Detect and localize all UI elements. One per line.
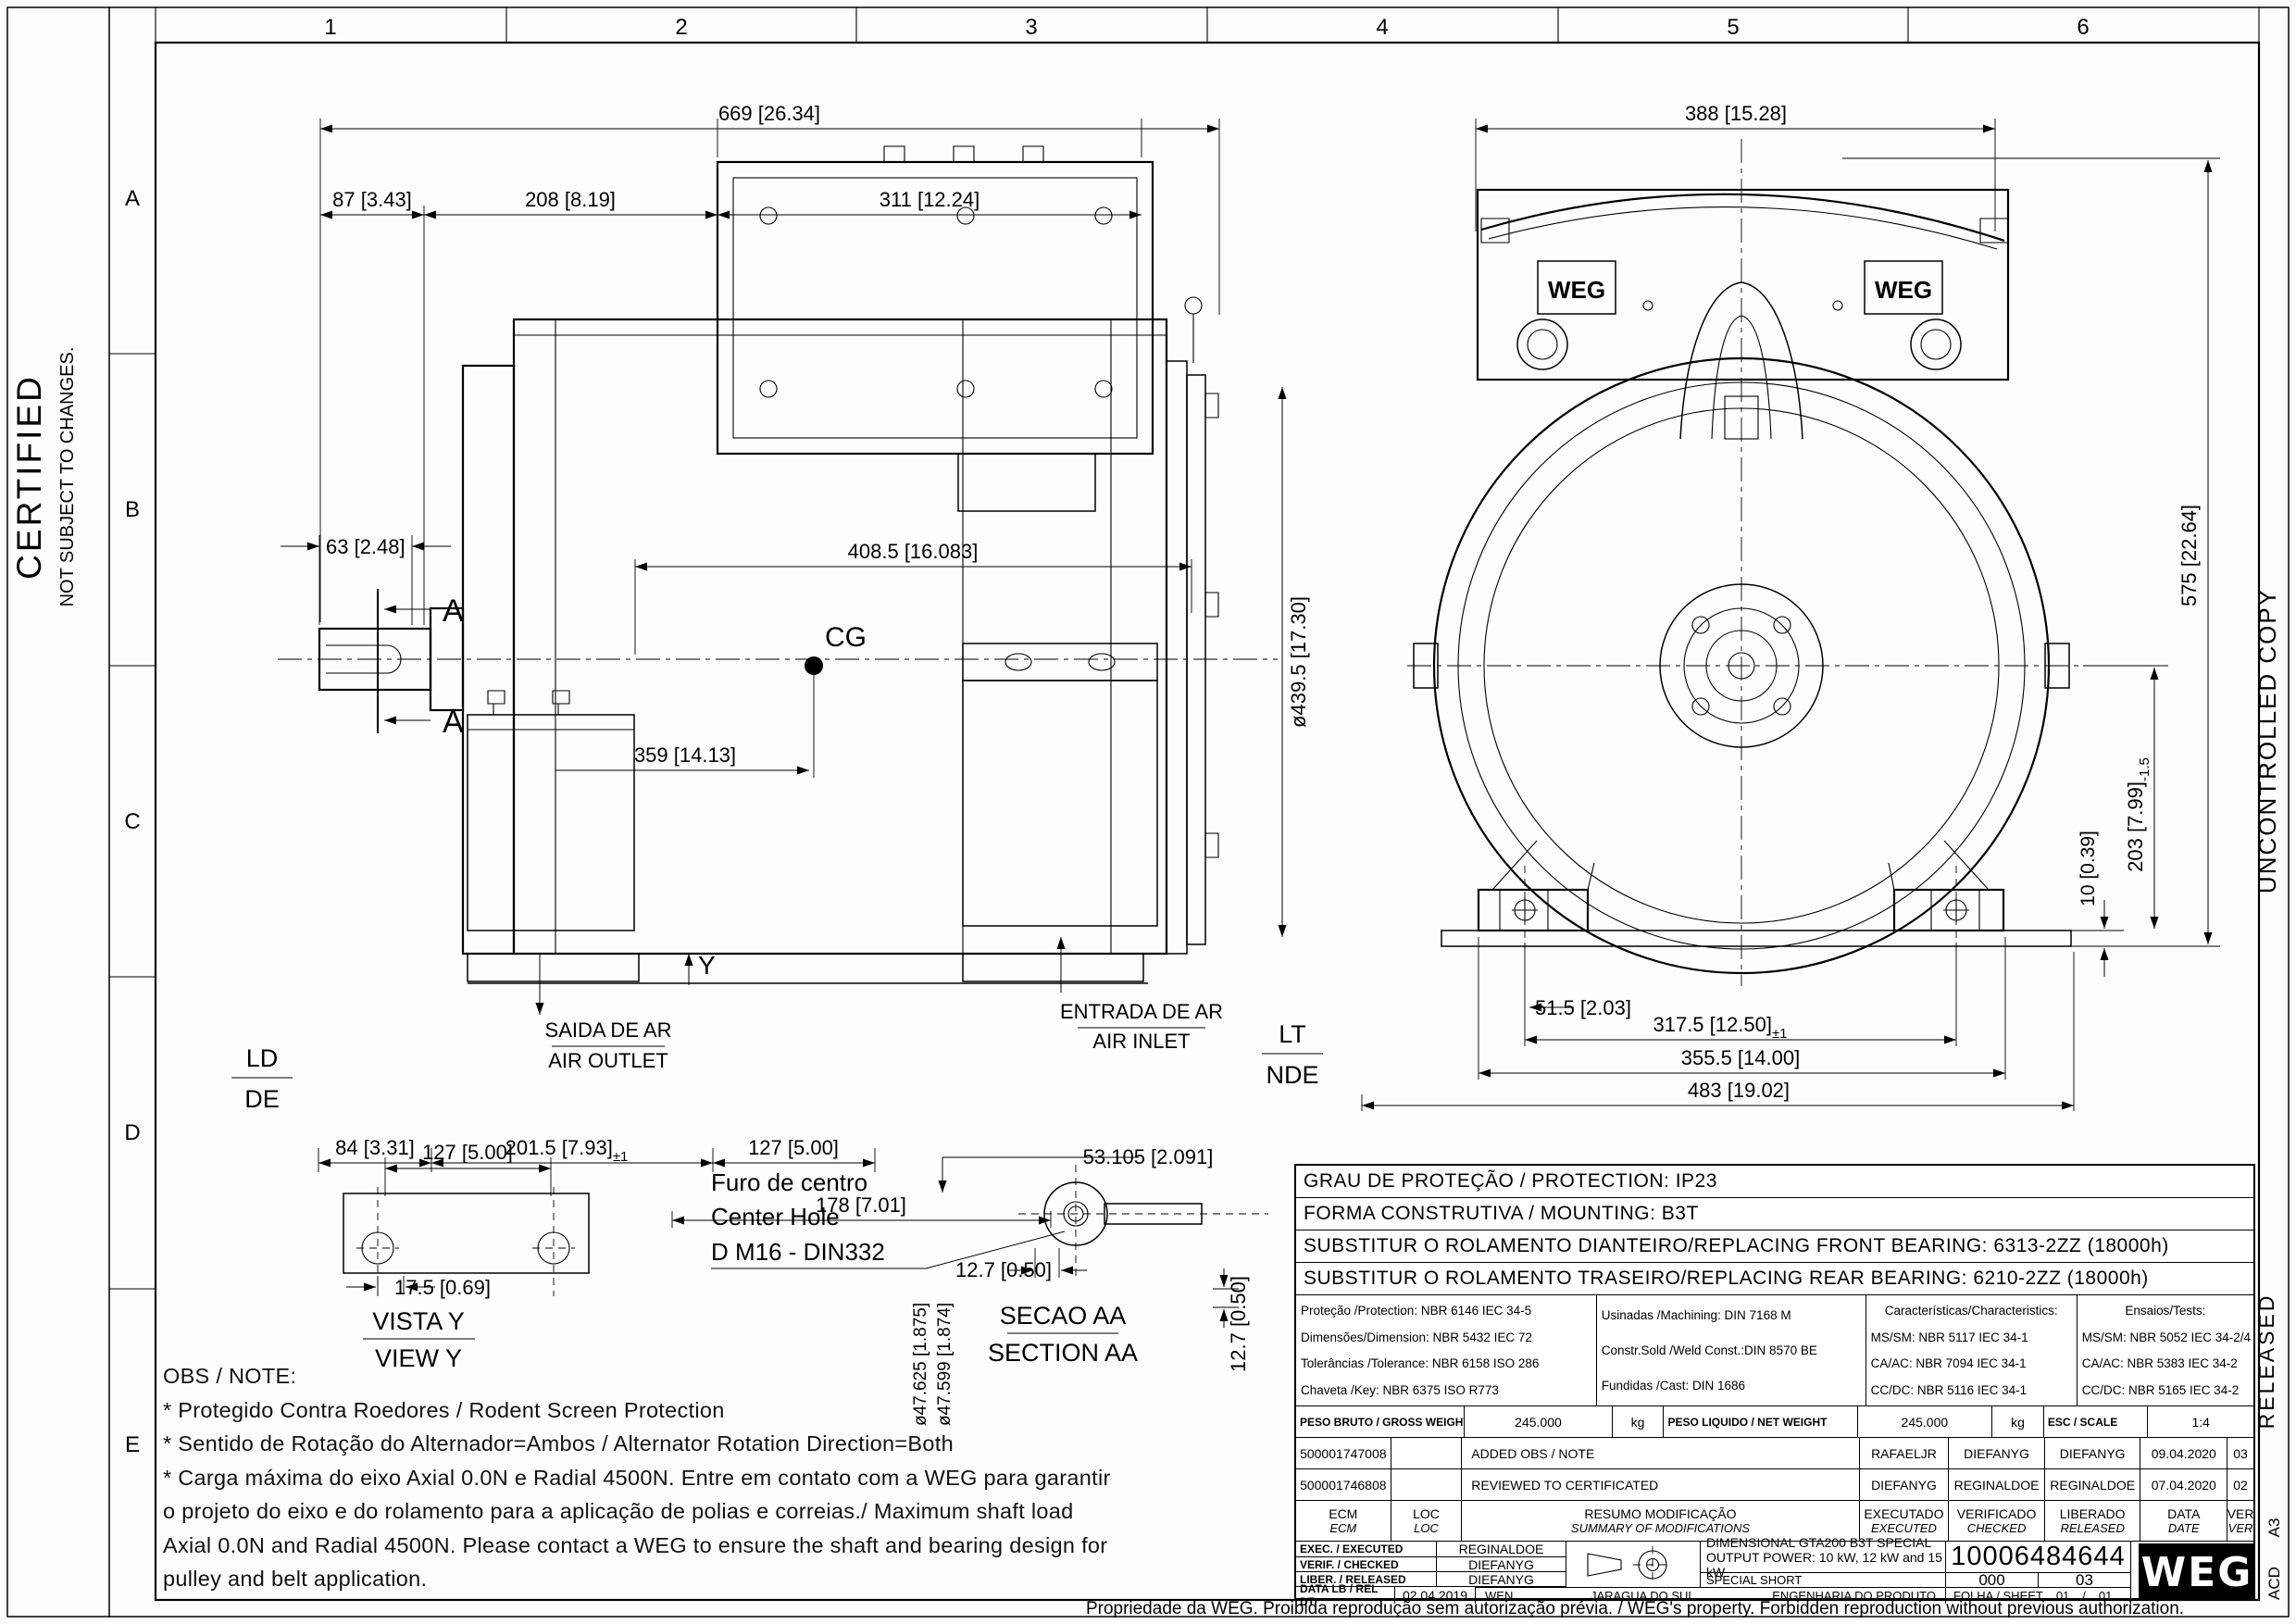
rev-ver: 02: [2227, 1469, 2253, 1500]
zone-col-3: 3: [1025, 15, 1037, 40]
liber-value: DIEFANYG: [1437, 1572, 1566, 1587]
y-view-arrow-label: Y: [698, 951, 716, 980]
rev-ver: 03: [2227, 1438, 2253, 1468]
uncontrolled-copy-stamp: UNCONTROLLED COPY: [2253, 588, 2281, 893]
rev-loc: [1391, 1438, 1463, 1468]
sheet-value: 01: [2056, 1589, 2069, 1603]
projection-symbol-cell: [1566, 1542, 1701, 1587]
note-line: * Sentido de Rotação do Alternador=Ambos…: [163, 1427, 1255, 1461]
dim-key-length: 53.105 [2.091]: [1083, 1145, 1214, 1168]
standard-line: Dimensões/Dimension: NBR 5432 IEC 72: [1301, 1330, 1591, 1344]
dim-base-thickness: 10 [0.39]: [2078, 831, 2099, 906]
standard-line: MS/SM: NBR 5052 IEC 34-2/4: [2082, 1330, 2249, 1344]
dim-cg-position: 359 [14.13]: [634, 743, 736, 767]
standard-line: CC/DC: NBR 5165 IEC 34-2: [2082, 1383, 2249, 1397]
weg-logo: WEG: [2139, 1543, 2255, 1601]
released-stamp: RELEASED: [2254, 1293, 2278, 1430]
center-hole-label-en: Center Hole: [711, 1203, 840, 1230]
air-outlet-label-pt: SAIDA DE AR: [545, 1018, 672, 1042]
site-row: WEN JARAGUA DO SUL ENGENHARIA DO PRODUTO: [1476, 1587, 1946, 1604]
title-block-tables: GRAU DE PROTEÇÃO / PROTECTION: IP23 FORM…: [1294, 1164, 2255, 1600]
zone-row-d: D: [124, 1120, 140, 1145]
rev-header-checked: VERIFICADOCHECKED: [1949, 1501, 2045, 1541]
dim-key-height: 12.7 [0.50]: [1227, 1276, 1250, 1372]
dim-frame-length: 408.5 [16.083]: [848, 540, 979, 563]
dim-feet-width: 355.5 [14.00]: [1681, 1046, 1800, 1069]
rev-date: 09.04.2020: [2140, 1438, 2227, 1468]
dim-foot-span: 201.5 [7.93]±1: [505, 1136, 629, 1165]
acd-label: ACD: [2265, 1567, 2283, 1600]
foot-hole-marks: [1512, 897, 1969, 923]
dim-foot-span-tol: ±1: [613, 1149, 629, 1165]
zone-col-1: 1: [324, 15, 336, 40]
spec-rear-bearing: SUBSTITUR O ROLAMENTO TRASEIRO/REPLACING…: [1296, 1263, 2253, 1294]
dim-foot-span-value: 201.5 [7.93]: [505, 1136, 613, 1159]
sheet-label: FOLHA / SHEET: [1953, 1589, 2043, 1603]
rev-header-date: DATADATE: [2140, 1501, 2227, 1541]
exec-label: EXEC. / EXECUTED: [1296, 1542, 1437, 1557]
drawing-sheet: 1 2 3 4 5 6 A B C D E CERTIFIED NOT SUBJ…: [0, 0, 2296, 1624]
standard-line: Usinadas /Machining: DIN 7168 M: [1602, 1308, 1861, 1322]
spec-row-front-bearing: SUBSTITUR O ROLAMENTO DIANTEIRO/REPLACIN…: [1296, 1230, 2253, 1263]
note-line: * Carga máxima do eixo Axial 0.0N e Radi…: [163, 1461, 1255, 1495]
standards-characteristics: Características/Characteristics: MS/SM: …: [1866, 1295, 2078, 1405]
rev-header-ecm: ECMECM: [1296, 1501, 1391, 1541]
a3-format-label: A3: [2265, 1518, 2283, 1538]
hdr-pt: RESUMO MODIFICAÇÃO: [1584, 1506, 1736, 1521]
date-value: 02.04.2019: [1395, 1587, 1476, 1604]
non-drive-end-label-en: NDE: [1266, 1061, 1318, 1089]
rev-date: 07.04.2020: [2140, 1469, 2227, 1500]
extension-lines: [318, 119, 2220, 1307]
rev-ecm: 500001746808: [1296, 1469, 1391, 1500]
spec-row-protection: GRAU DE PROTEÇÃO / PROTECTION: IP23: [1296, 1166, 2253, 1198]
standard-line: Fundidas /Cast: DIN 1686: [1602, 1379, 1861, 1393]
hdr-en: CHECKED: [1967, 1521, 2027, 1536]
hdr-en: LOC: [1414, 1521, 1439, 1536]
rev-released: REGINALDOE: [2045, 1469, 2141, 1500]
weg-cast-logo-right: WEG: [1875, 276, 1932, 304]
document-number: 10006484644: [1946, 1542, 2131, 1572]
dim-foot-holes-span: 317.5 [12.50]±1: [1653, 1013, 1787, 1042]
spec-protection: GRAU DE PROTEÇÃO / PROTECTION: IP23: [1296, 1166, 2253, 1197]
rev-header-ver: VERVER: [2227, 1501, 2253, 1541]
standard-line: Ensaios/Tests:: [2082, 1304, 2249, 1318]
rev-summary: ADDED OBS / NOTE: [1462, 1438, 1859, 1468]
dim-vista-offset: 17.5 [0.69]: [394, 1276, 491, 1299]
rev-header-loc: LOCLOC: [1391, 1501, 1463, 1541]
rev-ecm: 500001747008: [1296, 1438, 1391, 1468]
center-hole-label-pt: Furo de centro: [711, 1168, 867, 1196]
sheet-total: 01: [2099, 1589, 2112, 1603]
cg-marker: [805, 656, 823, 675]
standard-line: Chaveta /Key: NBR 6375 ISO R773: [1301, 1383, 1591, 1397]
drawing-title-cell: DIMENSIONAL GTA200 B3T SPECIAL OUTPUT PO…: [1701, 1542, 1946, 1572]
zone-row-b: B: [125, 497, 140, 522]
dim-foot-holes-span-value: 317.5 [12.50]: [1653, 1013, 1771, 1036]
hdr-en: RELEASED: [2060, 1521, 2124, 1536]
dim-shaft-height-tol: -1.5: [2137, 757, 2152, 781]
dim-rear-width: 388 [15.28]: [1685, 102, 1787, 125]
drawing-variant-cell: SPECIAL SHORT: [1701, 1572, 1946, 1587]
rev-loc: [1391, 1469, 1463, 1500]
dim-foot-edge: 51.5 [2.03]: [1535, 996, 1631, 1019]
hdr-pt: EXECUTADO: [1864, 1506, 1943, 1521]
dim-shaft-height: 203 [7.99]-1.5: [2124, 757, 2152, 872]
note-line: o projeto do eixo e do rolamento para a …: [163, 1494, 1255, 1529]
gross-weight-value: 245.000: [1465, 1406, 1612, 1437]
gross-weight-unit: kg: [1613, 1406, 1665, 1437]
air-inlet-label-en: AIR INLET: [1092, 1030, 1190, 1053]
dim-shaft-end: 87 [3.43]: [332, 188, 412, 211]
verif-value: DIEFANYG: [1437, 1557, 1566, 1572]
hdr-pt: ECM: [1329, 1506, 1357, 1521]
revision-right: 03: [2039, 1572, 2131, 1587]
drive-end-label-en: DE: [244, 1085, 280, 1113]
revision-left: 000: [1946, 1572, 2039, 1587]
air-outlet-label-en: AIR OUTLET: [548, 1049, 668, 1072]
spec-front-bearing: SUBSTITUR O ROLAMENTO DIANTEIRO/REPLACIN…: [1296, 1230, 2253, 1262]
note-line: Axial 0.0N and Radial 4500N. Please cont…: [163, 1529, 1255, 1563]
rev-executed: RAFAELJR: [1860, 1438, 1950, 1468]
dim-foot-hole: 127 [5.00]: [748, 1136, 839, 1159]
secao-aa-title-pt: SECAO AA: [1000, 1302, 1127, 1330]
revision-row-03: 500001747008 ADDED OBS / NOTE RAFAELJR D…: [1296, 1438, 2253, 1469]
first-angle-projection-icon: [1582, 1544, 1684, 1585]
air-inlet-label-pt: ENTRADA DE AR: [1060, 1000, 1223, 1023]
terminal-box-screws: [760, 207, 1112, 397]
note-line: * Protegido Contra Roedores / Rodent Scr…: [163, 1393, 1255, 1428]
hdr-pt: VERIFICADO: [1957, 1506, 2037, 1521]
zone-row-c: C: [124, 809, 140, 834]
scale-label: ESC / SCALE: [2044, 1406, 2149, 1437]
dim-foot-front: 84 [3.31]: [335, 1136, 415, 1159]
standard-line: Constr.Sold /Weld Const.:DIN 8570 BE: [1602, 1343, 1861, 1357]
not-subject-stamp: NOT SUBJECT TO CHANGES.: [57, 347, 78, 607]
site-name: JARAGUA DO SUL: [1591, 1589, 1695, 1603]
hdr-en: DATE: [2168, 1521, 2200, 1536]
standards-row: Proteção /Protection: NBR 6146 IEC 34-5 …: [1296, 1295, 2253, 1406]
verif-label: VERIF. / CHECKED: [1296, 1557, 1437, 1572]
hdr-pt: LIBERADO: [2060, 1506, 2126, 1521]
dim-overall-length: 669 [26.34]: [718, 102, 820, 125]
dim-terminal-box: 311 [12.24]: [880, 188, 980, 211]
drive-end-label-pt: LD: [246, 1044, 279, 1072]
dim-foot-holes-tol: ±1: [1772, 1026, 1788, 1042]
rev-executed: DIEFANYG: [1860, 1469, 1950, 1500]
dim-key-width: 12.7 [0.50]: [955, 1258, 1052, 1281]
hdr-en: VER: [2228, 1521, 2253, 1536]
notes-title: OBS / NOTE:: [163, 1359, 1255, 1393]
spec-row-rear-bearing: SUBSTITUR O ROLAMENTO TRASEIRO/REPLACING…: [1296, 1263, 2253, 1295]
dim-overall-width: 483 [19.02]: [1688, 1079, 1790, 1102]
standard-line: Tolerâncias /Tolerance: NBR 6158 ISO 286: [1301, 1356, 1591, 1370]
hdr-en: ECM: [1329, 1521, 1356, 1536]
sheet-separator: /: [2082, 1589, 2086, 1603]
weights-row: PESO BRUTO / GROSS WEIGHT 245.000 kg PES…: [1296, 1406, 2253, 1438]
weg-cast-logo-left: WEG: [1548, 276, 1605, 304]
zone-col-6: 6: [2077, 15, 2089, 40]
revision-row-02: 500001746808 REVIEWED TO CERTIFICATED DI…: [1296, 1469, 2253, 1501]
net-weight-label: PESO LIQUIDO / NET WEIGHT: [1664, 1406, 1857, 1437]
vista-y-title-pt: VISTA Y: [372, 1307, 465, 1335]
standards-general: Proteção /Protection: NBR 6146 IEC 34-5 …: [1296, 1295, 1597, 1405]
standard-line: Características/Characteristics:: [1871, 1304, 2072, 1318]
rev-released: DIEFANYG: [2045, 1438, 2141, 1468]
net-weight-value: 245.000: [1858, 1406, 1992, 1437]
hdr-en: EXECUTED: [1871, 1521, 1937, 1536]
standard-line: CA/AC: NBR 7094 IEC 34-1: [1871, 1356, 2072, 1370]
scale-value: 1:4: [2148, 1406, 2253, 1437]
standards-tests: Ensaios/Tests: MS/SM: NBR 5052 IEC 34-2/…: [2078, 1295, 2253, 1405]
rev-checked: REGINALDOE: [1949, 1469, 2045, 1500]
dim-overall-height: 575 [22.64]: [2177, 505, 2201, 606]
hdr-pt: DATA: [2167, 1506, 2200, 1521]
department: ENGENHARIA DO PRODUTO: [1772, 1589, 1936, 1603]
rear-view: WEG WEG: [1407, 139, 2083, 986]
gross-weight-label: PESO BRUTO / GROSS WEIGHT: [1296, 1406, 1465, 1437]
dim-front-section: 208 [8.19]: [525, 188, 616, 211]
zone-row-e: E: [125, 1432, 140, 1457]
standard-line: MS/SM: NBR 5117 IEC 34-1: [1871, 1330, 2072, 1344]
rev-summary: REVIEWED TO CERTIFICATED: [1462, 1469, 1859, 1500]
standard-line: Proteção /Protection: NBR 6146 IEC 34-5: [1301, 1304, 1591, 1318]
zone-col-4: 4: [1376, 15, 1388, 40]
hdr-pt: LOC: [1413, 1506, 1440, 1521]
cg-label: CG: [825, 622, 867, 653]
section-a-label-bottom: A: [443, 705, 464, 740]
note-line: pulley and belt application.: [163, 1562, 1255, 1596]
net-weight-unit: kg: [1992, 1406, 2044, 1437]
side-view: [278, 146, 1278, 983]
zone-col-5: 5: [1727, 15, 1739, 40]
dim-frame-dia: ø439.5 [17.30]: [1287, 596, 1310, 728]
spec-row-mounting: FORMA CONSTRUTIVA / MOUNTING: B3T: [1296, 1198, 2253, 1230]
certified-stamp: CERTIFIED: [10, 374, 48, 580]
standard-line: CC/DC: NBR 5116 IEC 34-1: [1871, 1383, 2072, 1397]
rev-header-released: LIBERADORELEASED: [2045, 1501, 2141, 1541]
dim-shaft-ext: 63 [2.48]: [326, 535, 406, 558]
spec-mounting: FORMA CONSTRUTIVA / MOUNTING: B3T: [1296, 1198, 2253, 1230]
notes-block: OBS / NOTE: * Protegido Contra Roedores …: [163, 1359, 1255, 1596]
center-hole-spec: D M16 - DIN332: [711, 1238, 885, 1266]
standard-line: CA/AC: NBR 5383 IEC 34-2: [2082, 1356, 2249, 1370]
standards-manufacturing: Usinadas /Machining: DIN 7168 M Constr.S…: [1597, 1295, 1866, 1405]
dim-vista-holes: 127 [5.00]: [422, 1141, 513, 1164]
dim-shaft-height-value: 203 [7.99]: [2124, 781, 2147, 872]
site-code: WEN: [1485, 1589, 1513, 1603]
hdr-pt: VER: [2227, 1506, 2253, 1521]
drawing-title: DIMENSIONAL GTA200 B3T SPECIAL: [1706, 1535, 1945, 1550]
section-a-label-top: A: [443, 593, 464, 629]
sheet-number-cell: FOLHA / SHEET 01 / 01: [1946, 1587, 2131, 1604]
date-label: DATA LB / REL DT: [1296, 1587, 1395, 1604]
non-drive-end-label-pt: LT: [1279, 1020, 1306, 1048]
zone-row-a: A: [125, 186, 140, 211]
title-block: EXEC. / EXECUTED REGINALDOE VERIF. / CHE…: [1296, 1542, 2253, 1604]
exec-value: REGINALDOE: [1437, 1542, 1566, 1557]
rev-checked: DIEFANYG: [1949, 1438, 2045, 1468]
zone-col-2: 2: [675, 15, 687, 40]
hdr-en: SUMMARY OF MODIFICATIONS: [1571, 1521, 1750, 1536]
